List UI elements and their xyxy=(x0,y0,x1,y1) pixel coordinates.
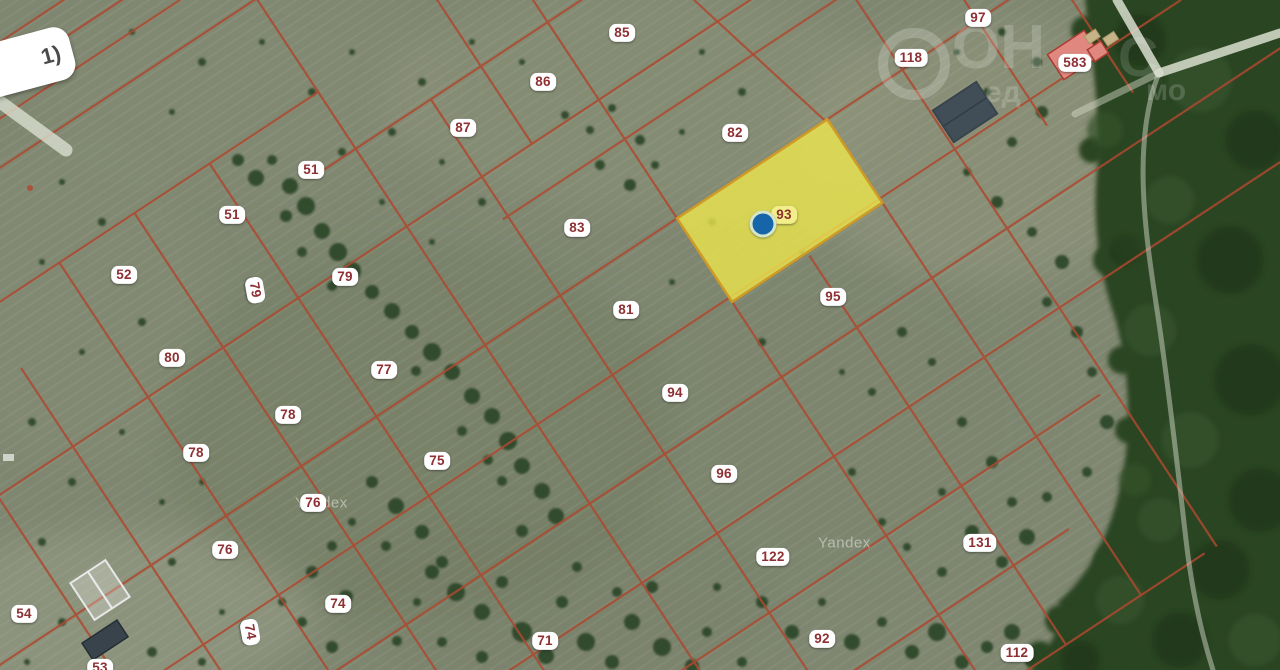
plot-label-54[interactable]: 54 xyxy=(11,605,37,623)
plot-label-76[interactable]: 76 xyxy=(212,541,238,559)
plot-label-83[interactable]: 83 xyxy=(564,219,590,237)
plot-label-86[interactable]: 86 xyxy=(530,73,556,91)
plot-label-76[interactable]: 76 xyxy=(300,494,326,512)
plot-labels-layer: 9711858385868782515183935279798195807794… xyxy=(0,0,1280,670)
plot-label-78[interactable]: 78 xyxy=(183,444,209,462)
plot-label-85[interactable]: 85 xyxy=(609,24,635,42)
plot-label-78[interactable]: 78 xyxy=(275,406,301,424)
plot-label-131[interactable]: 131 xyxy=(963,534,996,552)
plot-label-51[interactable]: 51 xyxy=(298,161,324,179)
map-callout-partial-text: 1) xyxy=(38,40,64,70)
plot-label-96[interactable]: 96 xyxy=(711,465,737,483)
plot-label-87[interactable]: 87 xyxy=(450,119,476,137)
plot-label-95[interactable]: 95 xyxy=(820,288,846,306)
plot-label-74[interactable]: 74 xyxy=(325,595,351,613)
plot-label-80[interactable]: 80 xyxy=(159,349,185,367)
plot-label-97[interactable]: 97 xyxy=(965,9,991,27)
plot-label-92[interactable]: 92 xyxy=(809,630,835,648)
plot-label-81[interactable]: 81 xyxy=(613,301,639,319)
plot-label-118[interactable]: 118 xyxy=(895,49,928,67)
plot-label-51[interactable]: 51 xyxy=(219,206,245,224)
plot-label-122[interactable]: 122 xyxy=(756,548,789,566)
plot-label-74[interactable]: 74 xyxy=(239,618,261,646)
map-canvas[interactable]: ОН С ед мо Yandex Yandex 971185838586878… xyxy=(0,0,1280,670)
plot-label-583[interactable]: 583 xyxy=(1058,54,1091,72)
plot-label-53[interactable]: 53 xyxy=(87,659,113,670)
plot-label-79[interactable]: 79 xyxy=(332,268,358,286)
plot-label-52[interactable]: 52 xyxy=(111,266,137,284)
plot-label-94[interactable]: 94 xyxy=(662,384,688,402)
plot-label-75[interactable]: 75 xyxy=(424,452,450,470)
plot-label-112[interactable]: 112 xyxy=(1001,644,1034,662)
selected-plot-marker[interactable] xyxy=(750,211,777,238)
plot-label-79[interactable]: 79 xyxy=(244,276,266,304)
plot-label-82[interactable]: 82 xyxy=(722,124,748,142)
plot-label-71[interactable]: 71 xyxy=(532,632,558,650)
plot-label-77[interactable]: 77 xyxy=(371,361,397,379)
